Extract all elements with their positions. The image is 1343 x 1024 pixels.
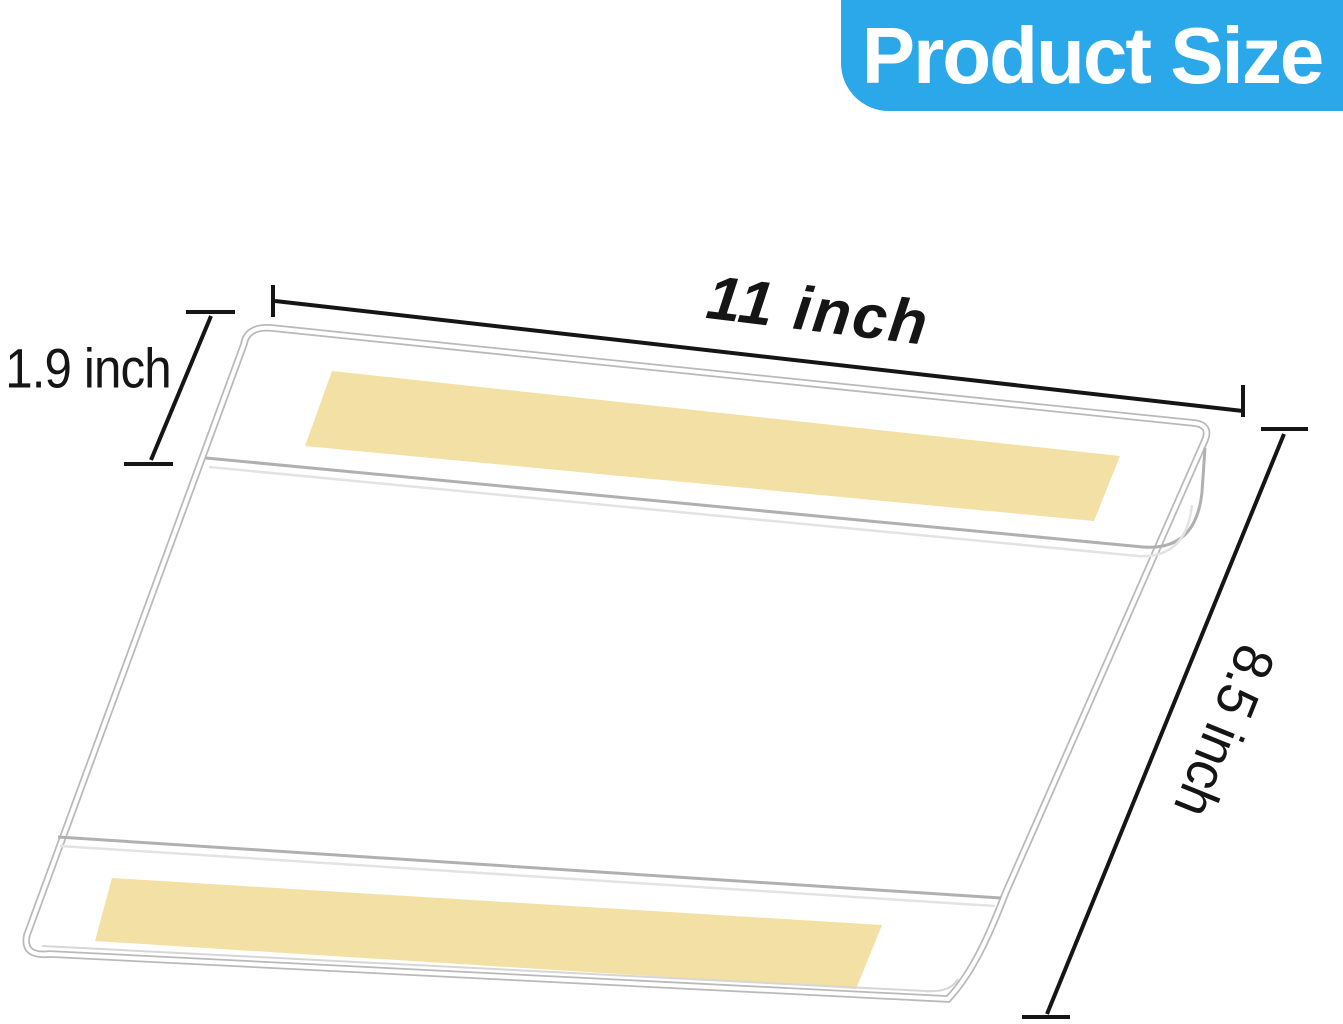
sign-holder-illustration xyxy=(0,0,1343,1024)
banner-label: Product Size xyxy=(862,10,1323,102)
pocket-depth-dimension-label: 1.9 inch xyxy=(5,336,171,401)
product-size-diagram: Product Size 11 inch 1.9 inch 8.5 inch xyxy=(0,0,1343,1024)
product-size-banner: Product Size xyxy=(841,0,1343,111)
acrylic-sign-holder xyxy=(26,328,1206,999)
